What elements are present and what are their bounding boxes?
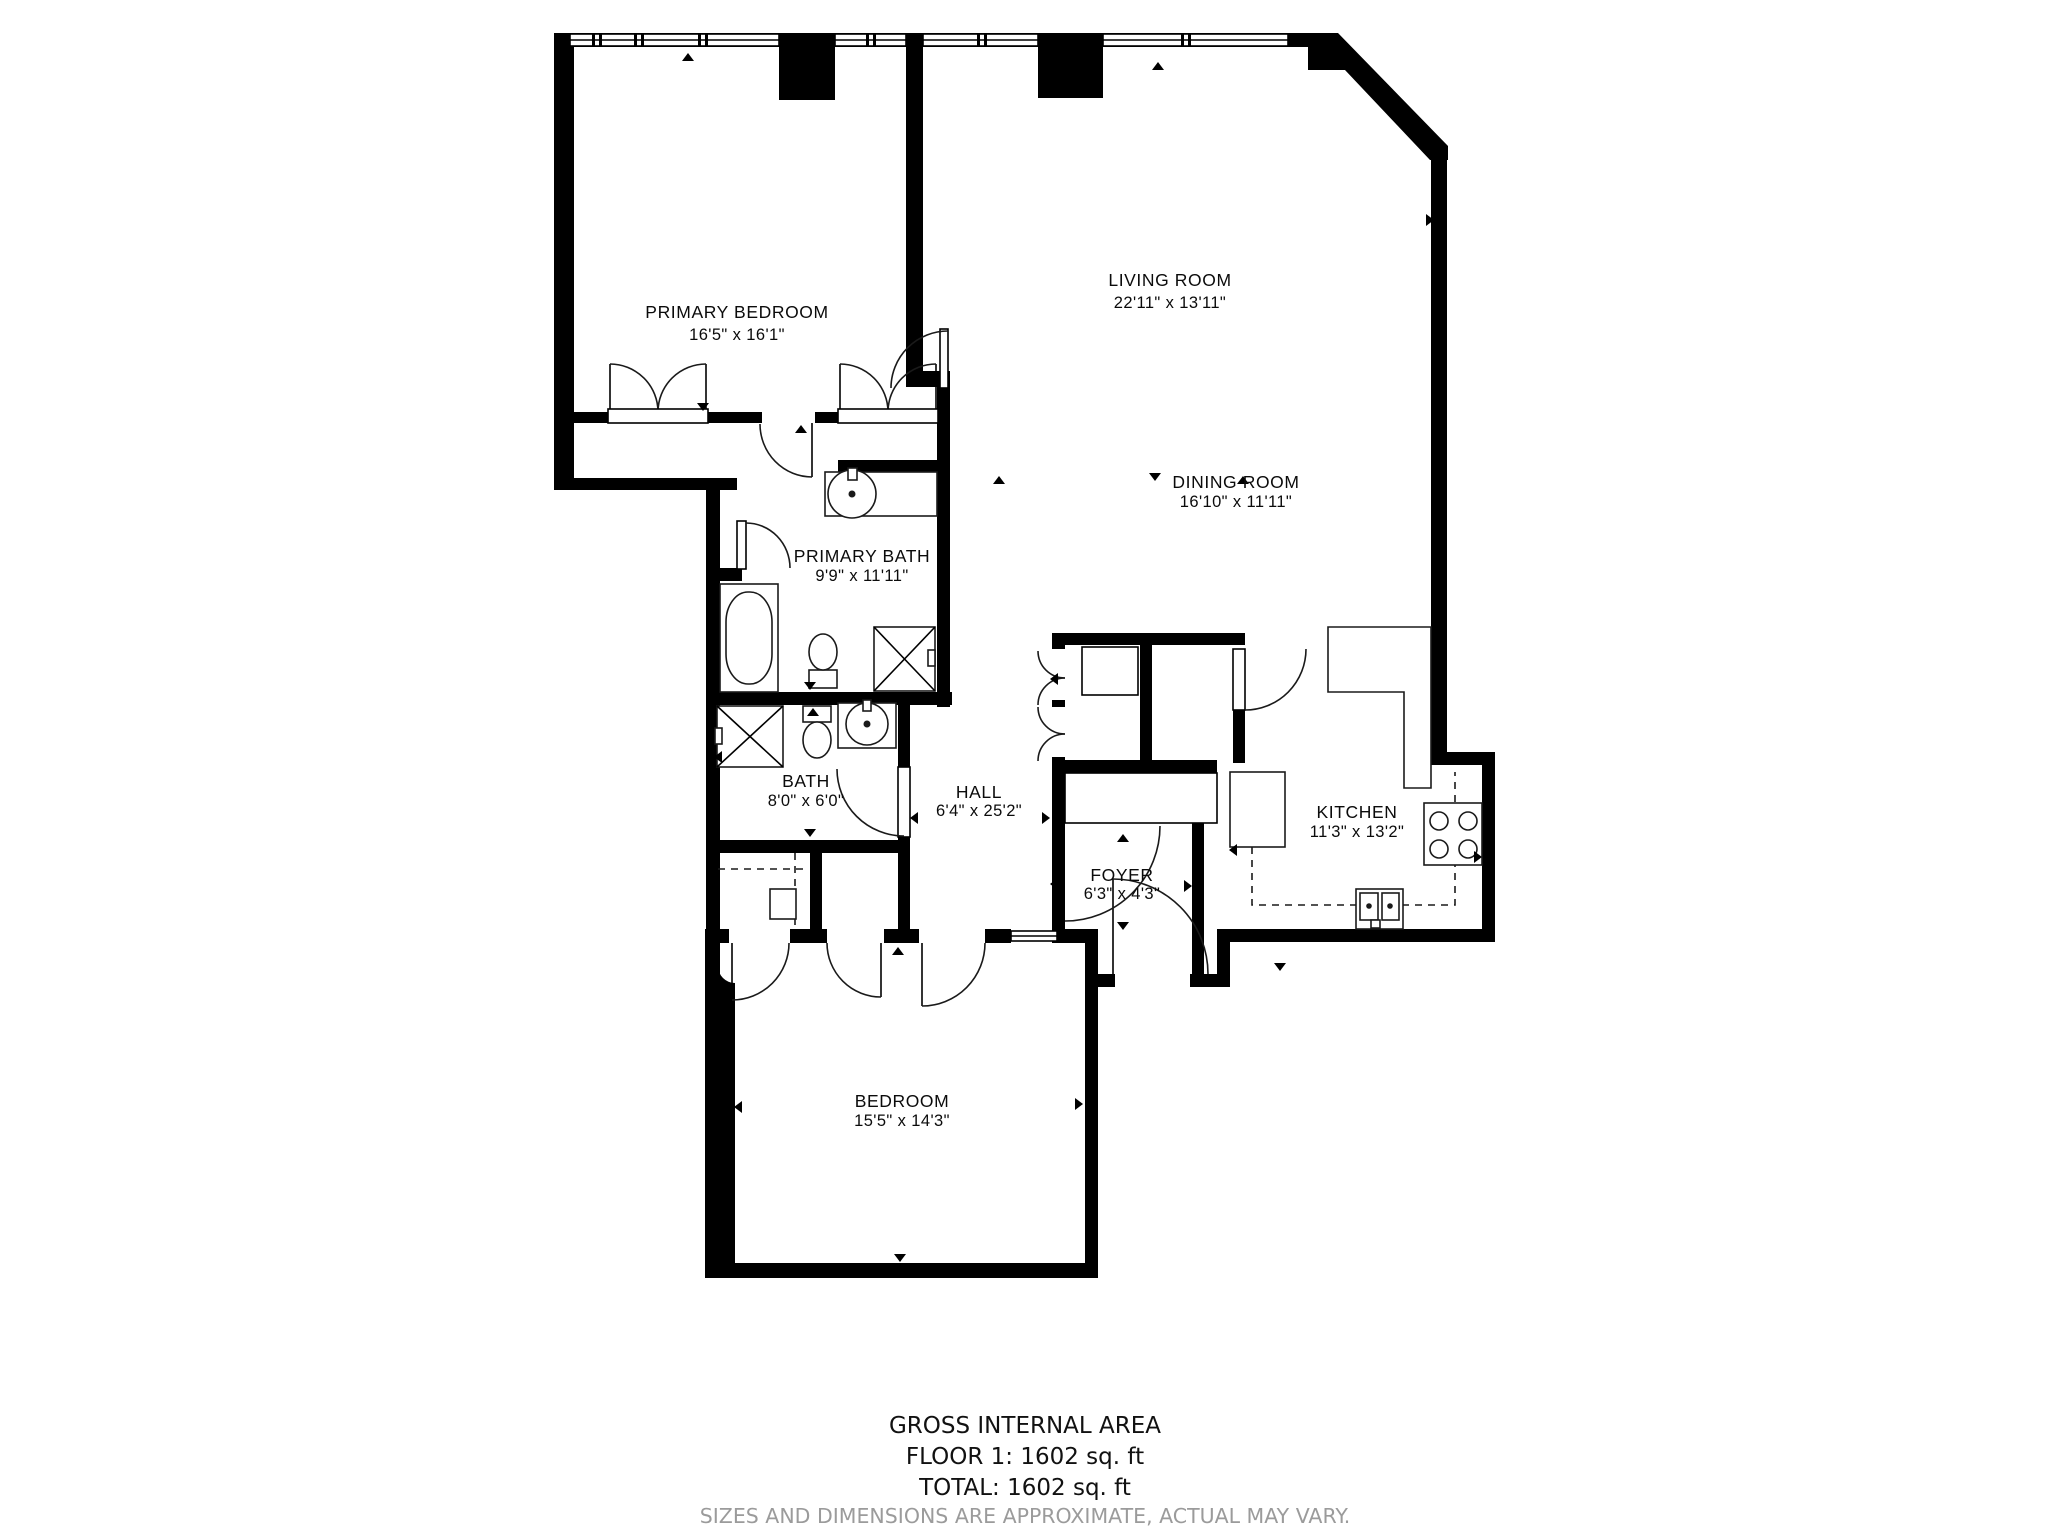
bedroom-left-wall xyxy=(705,929,735,1278)
label-dining-room: DINING ROOM xyxy=(1172,472,1299,492)
window-band-living-2 xyxy=(1103,34,1288,46)
label-bedroom: BEDROOM xyxy=(855,1091,950,1111)
footer-area-title: GROSS INTERNAL AREA xyxy=(889,1413,1161,1439)
door-bedroom-closet-right xyxy=(827,943,881,997)
door-primary-bath xyxy=(737,521,790,569)
bathtub xyxy=(720,584,778,692)
door-kitchen xyxy=(1233,649,1306,710)
dims-dining-room: 16'10" x 11'11" xyxy=(1180,493,1292,511)
label-primary-bedroom: PRIMARY BEDROOM xyxy=(645,302,828,322)
dims-primary-bath: 9'9" x 11'11" xyxy=(815,567,908,585)
primary-closet-doors-left xyxy=(608,364,708,423)
laundry-closet-shelving xyxy=(718,853,808,925)
label-hall: HALL xyxy=(956,782,1002,802)
floor-plan: PRIMARY BEDROOM 16'5" x 16'1" LIVING ROO… xyxy=(0,0,2048,1536)
dims-kitchen: 11'3" x 13'2" xyxy=(1310,823,1404,841)
footer: GROSS INTERNAL AREA FLOOR 1: 1602 sq. ft… xyxy=(700,1413,1351,1528)
kitchen-sink xyxy=(1356,889,1403,929)
foyer-closet xyxy=(1065,773,1217,823)
label-bath: BATH xyxy=(782,771,830,791)
floorplan-page: PRIMARY BEDROOM 16'5" x 16'1" LIVING ROO… xyxy=(0,0,2048,1536)
door-bath xyxy=(837,767,910,837)
window-band-primary-bedroom xyxy=(570,34,779,46)
footer-disclaimer: SIZES AND DIMENSIONS ARE APPROXIMATE, AC… xyxy=(700,1504,1351,1528)
door-bedroom-closet-left xyxy=(732,943,789,1000)
label-kitchen: KITCHEN xyxy=(1316,802,1397,822)
hall-sidelight-window xyxy=(1011,931,1057,941)
label-primary-bath: PRIMARY BATH xyxy=(794,546,931,566)
sink-bath xyxy=(838,700,896,748)
shower-primary-bath xyxy=(874,627,935,691)
dims-bath: 8'0" x 6'0" xyxy=(768,792,845,810)
footer-floor-line: FLOOR 1: 1602 sq. ft xyxy=(906,1444,1144,1470)
hall-closet-shelf xyxy=(1082,647,1138,695)
dims-primary-bedroom: 16'5" x 16'1" xyxy=(689,326,785,344)
dims-foyer: 6'3" x 4'3" xyxy=(1084,885,1161,903)
angled-wall xyxy=(1288,33,1448,160)
label-living-room: LIVING ROOM xyxy=(1108,270,1231,290)
shower-bath xyxy=(715,706,783,767)
dims-living-room: 22'11" x 13'11" xyxy=(1114,294,1226,312)
dims-hall: 6'4" x 25'2" xyxy=(936,802,1022,820)
window-band-living-1 xyxy=(923,34,1038,46)
label-foyer: FOYER xyxy=(1090,865,1153,885)
toilet-primary-bath xyxy=(809,634,837,688)
window-band-2 xyxy=(835,34,906,46)
door-bedroom-entry xyxy=(922,943,985,1006)
footer-total-line: TOTAL: 1602 sq. ft xyxy=(918,1475,1131,1501)
sink-primary-bath xyxy=(825,468,937,518)
dims-bedroom: 15'5" x 14'3" xyxy=(854,1112,950,1130)
stove xyxy=(1424,803,1482,865)
kitchen-counter xyxy=(1230,627,1455,905)
